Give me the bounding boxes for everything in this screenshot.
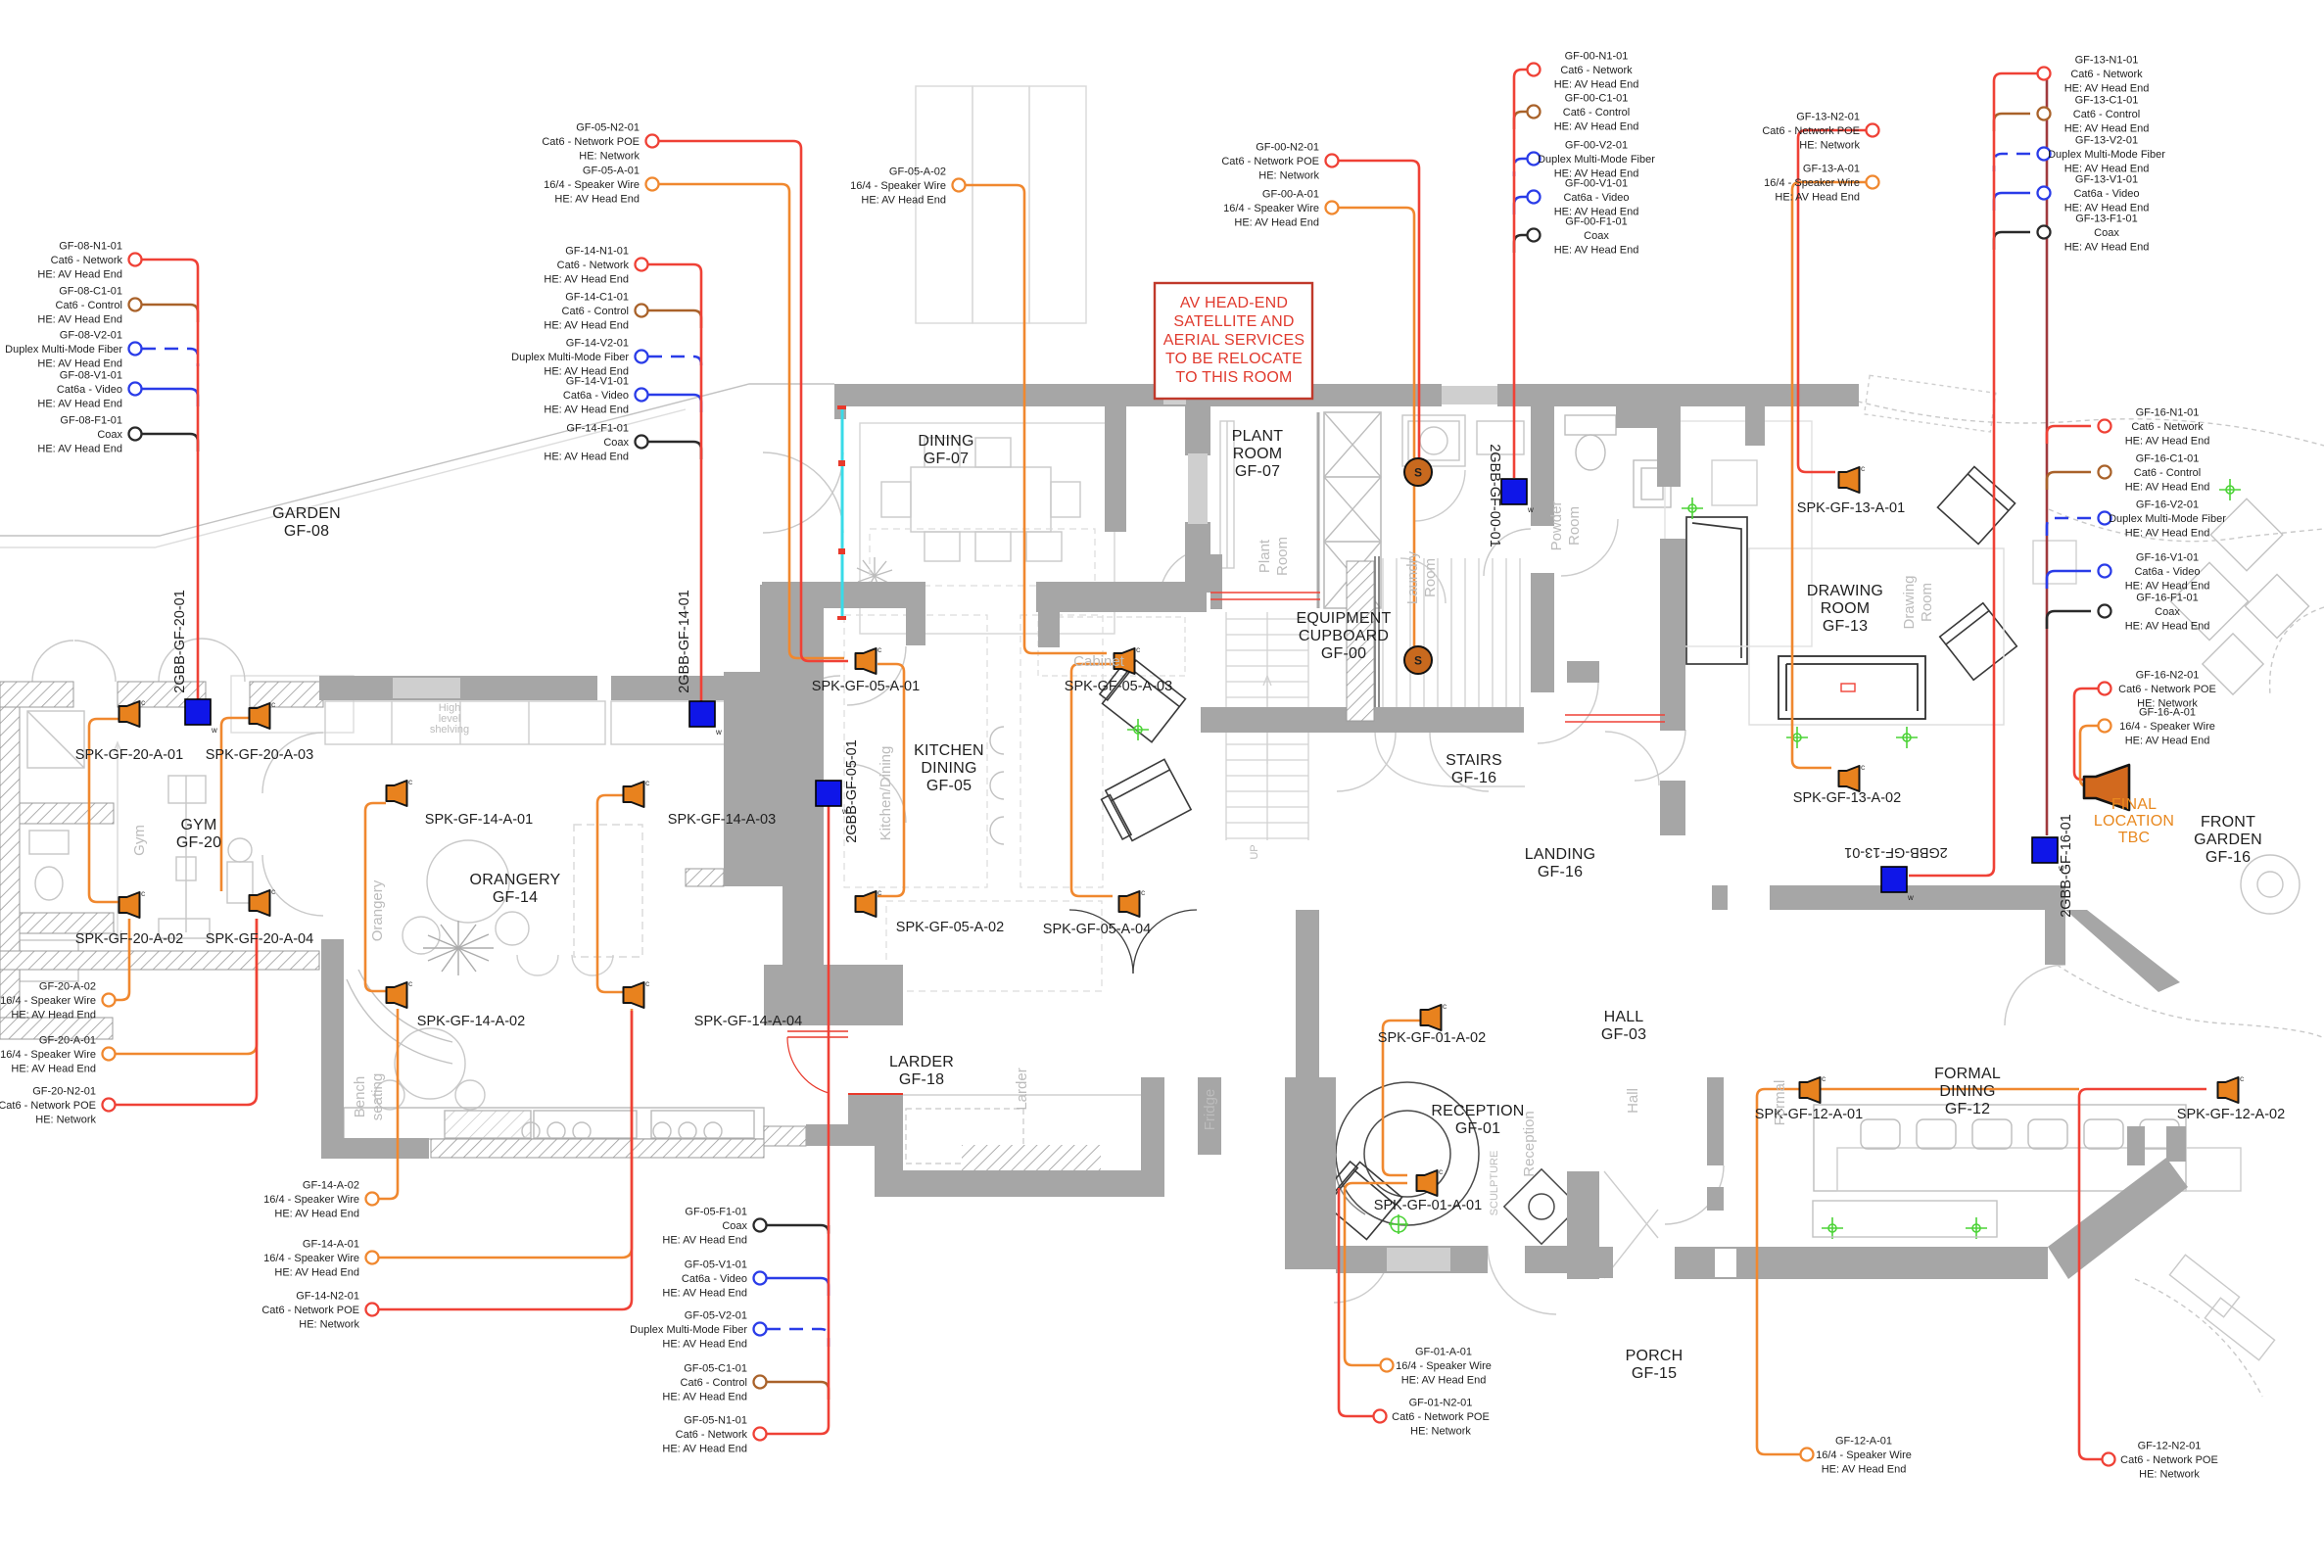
svg-text:Fridge: Fridge [1202,1089,1218,1131]
svg-text:Reception: Reception [1521,1111,1538,1177]
svg-text:GF-16-C1-01Cat6 - ControlHE: A: GF-16-C1-01Cat6 - ControlHE: AV Head End [2125,453,2210,494]
svg-text:w: w [211,726,217,735]
svg-text:SPK-GF-12-A-02: SPK-GF-12-A-02 [2177,1107,2285,1122]
svg-text:SPK-GF-14-A-03: SPK-GF-14-A-03 [668,812,776,828]
svg-text:Room: Room [1919,583,1935,622]
svg-text:Bench: Bench [352,1076,368,1118]
svg-text:SCULPTURE: SCULPTURE [1489,1151,1500,1216]
svg-text:SPK-GF-14-A-02: SPK-GF-14-A-02 [417,1014,525,1029]
svg-text:GF-13-C1-01Cat6 - ControlHE: A: GF-13-C1-01Cat6 - ControlHE: AV Head End [2064,95,2150,135]
svg-text:GF-13-V1-01Cat6a - VideoHE: AV: GF-13-V1-01Cat6a - VideoHE: AV Head End [2064,174,2150,214]
svg-text:2GBB-GF-14-01: 2GBB-GF-14-01 [677,590,692,693]
svg-text:Powder: Powder [1548,501,1565,551]
svg-text:GYMGF-20: GYMGF-20 [176,817,221,851]
svg-text:SPK-GF-14-A-04: SPK-GF-14-A-04 [694,1014,802,1029]
svg-text:w: w [1527,505,1534,514]
svg-text:2GBB-GF-16-01: 2GBB-GF-16-01 [2059,814,2074,918]
svg-text:w: w [1907,893,1914,902]
svg-text:2GBB-GF-20-01: 2GBB-GF-20-01 [172,590,188,693]
svg-text:S: S [1414,654,1422,668]
svg-text:SPK-GF-20-A-04: SPK-GF-20-A-04 [206,931,313,947]
svg-text:SPK-GF-14-A-01: SPK-GF-14-A-01 [425,812,533,828]
svg-text:LARDERGF-18: LARDERGF-18 [889,1054,954,1088]
svg-text:SPK-GF-05-A-04: SPK-GF-05-A-04 [1043,922,1151,937]
svg-text:PLANTROOMGF-07: PLANTROOMGF-07 [1232,428,1284,480]
svg-text:Hall: Hall [1625,1088,1641,1114]
svg-text:Room: Room [1422,558,1439,597]
svg-text:GF-00-N1-01Cat6 - NetworkHE: A: GF-00-N1-01Cat6 - NetworkHE: AV Head End [1554,51,1639,91]
svg-text:GF-00-C1-01Cat6 - ControlHE: A: GF-00-C1-01Cat6 - ControlHE: AV Head End [1554,93,1639,133]
svg-text:Drawing: Drawing [1901,575,1918,629]
svg-text:2GBB-GF-00-01: 2GBB-GF-00-01 [1487,444,1502,547]
svg-text:SPK-GF-20-A-01: SPK-GF-20-A-01 [75,747,183,763]
svg-text:GF-16-N1-01Cat6 - NetworkHE: A: GF-16-N1-01Cat6 - NetworkHE: AV Head End [2125,407,2210,448]
svg-text:SPK-GF-13-A-01: SPK-GF-13-A-01 [1797,500,1905,516]
svg-text:SPK-GF-05-A-03: SPK-GF-05-A-03 [1065,679,1172,694]
svg-text:S: S [1414,466,1422,480]
svg-text:Larder: Larder [1014,1068,1030,1110]
svg-text:Room: Room [1274,537,1291,576]
svg-text:Room: Room [1566,506,1583,546]
svg-text:Orangery: Orangery [369,879,386,941]
svg-text:SPK-GF-05-A-01: SPK-GF-05-A-01 [812,679,920,694]
svg-text:2GBB-GF-05-01: 2GBB-GF-05-01 [844,739,860,843]
svg-text:Plant: Plant [1257,539,1273,573]
svg-text:SPK-GF-05-A-02: SPK-GF-05-A-02 [896,920,1004,935]
svg-text:SPK-GF-20-A-02: SPK-GF-20-A-02 [75,931,183,947]
svg-text:Cabinet: Cabinet [1073,653,1125,670]
svg-text:SPK-GF-13-A-02: SPK-GF-13-A-02 [1793,790,1901,806]
svg-text:Kitchen/Dining: Kitchen/Dining [877,746,894,841]
svg-text:UP: UP [1249,844,1260,859]
svg-text:w: w [715,728,722,736]
svg-text:Laundry: Laundry [1404,550,1421,604]
svg-text:HALLGF-03: HALLGF-03 [1601,1009,1646,1043]
svg-text:2GBB-GF-13-01: 2GBB-GF-13-01 [1844,844,1948,860]
svg-text:Formal: Formal [1772,1080,1788,1126]
svg-text:seating: seating [369,1073,386,1120]
svg-text:SPK-GF-20-A-03: SPK-GF-20-A-03 [206,747,313,763]
svg-text:PORCHGF-15: PORCHGF-15 [1626,1348,1684,1382]
svg-text:GF-00-V1-01Cat6a - VideoHE: AV: GF-00-V1-01Cat6a - VideoHE: AV Head End [1554,178,1639,218]
svg-text:GF-13-N1-01Cat6 - NetworkHE: A: GF-13-N1-01Cat6 - NetworkHE: AV Head End [2064,55,2150,95]
svg-text:SPK-GF-01-A-02: SPK-GF-01-A-02 [1378,1030,1486,1046]
svg-text:STAIRSGF-16: STAIRSGF-16 [1446,752,1502,786]
svg-text:AV HEAD-ENDSATELLITE ANDAERIAL: AV HEAD-ENDSATELLITE ANDAERIAL SERVICEST… [1163,295,1304,386]
svg-text:Gym: Gym [131,825,148,856]
svg-text:GF-16-V1-01Cat6a - VideoHE: AV: GF-16-V1-01Cat6a - VideoHE: AV Head End [2125,552,2210,593]
svg-text:SPK-GF-01-A-01: SPK-GF-01-A-01 [1374,1198,1482,1213]
svg-text:DININGGF-07: DININGGF-07 [918,433,973,467]
